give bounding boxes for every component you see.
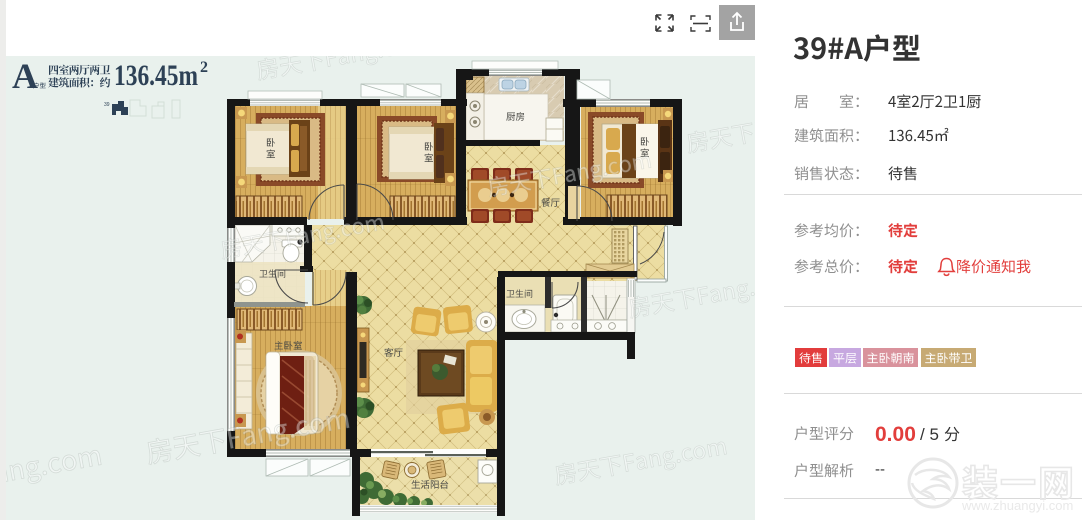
svg-text:0.00: 0.00 xyxy=(875,423,916,446)
svg-text:39: 39 xyxy=(104,102,110,108)
svg-text:2: 2 xyxy=(200,59,208,76)
svg-text:136.45m: 136.45m xyxy=(114,59,198,92)
svg-text:A: A xyxy=(12,56,38,96)
svg-text:/ 5: / 5 xyxy=(920,425,939,444)
svg-text:www.zhuangyi.com: www.zhuangyi.com xyxy=(961,498,1073,513)
svg-text:--: -- xyxy=(875,461,885,478)
